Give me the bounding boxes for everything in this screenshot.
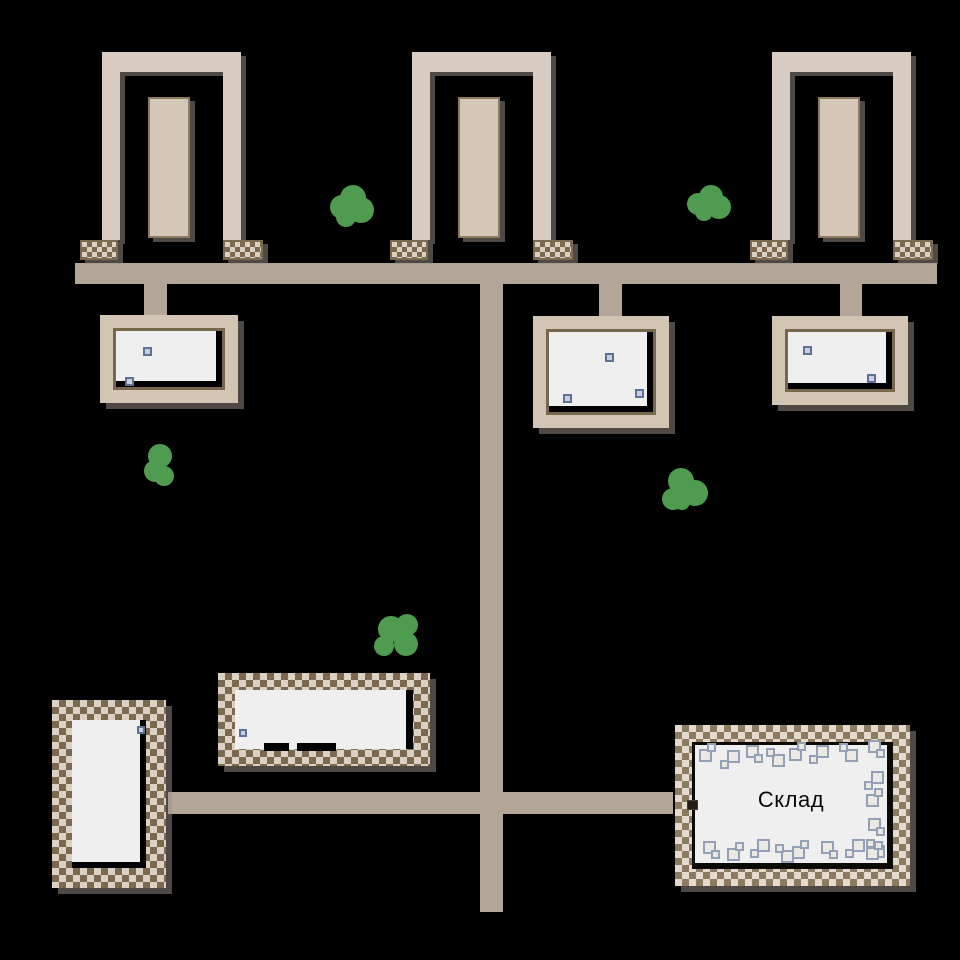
crate-box: [816, 745, 829, 758]
gate-icon: [223, 240, 263, 260]
hall-wall: [772, 52, 790, 240]
crate-icon: [699, 743, 721, 765]
crate-box: [772, 754, 785, 767]
crate-box: [727, 848, 740, 861]
hall-wall: [223, 52, 241, 240]
crate-box: [872, 845, 885, 858]
item-marker-icon: [239, 729, 247, 737]
hall-core: [818, 97, 860, 238]
hall-wall: [102, 52, 241, 72]
crate-box: [864, 781, 873, 790]
house-interior: [785, 329, 895, 392]
bush-lobe: [330, 195, 354, 219]
roads-layer: [0, 0, 960, 960]
crate-box: [829, 850, 838, 859]
house-interior: [546, 329, 656, 415]
crate-icon: [866, 841, 888, 863]
crate-box: [707, 743, 716, 752]
warehouse-door-icon: [687, 800, 698, 810]
hall-core: [148, 97, 190, 238]
hall-wall: [533, 52, 551, 240]
depot-interior: [235, 690, 413, 749]
bush-lobe: [396, 614, 418, 636]
floor-gap: [264, 743, 289, 751]
gate-icon: [750, 240, 788, 260]
item-marker-icon: [803, 346, 812, 355]
crate-box: [868, 740, 881, 753]
hall-wall: [893, 52, 911, 240]
crate-box: [711, 850, 720, 859]
crate-icon: [839, 743, 861, 765]
warehouse-building[interactable]: Склад: [675, 725, 910, 886]
fenced-depot-wide[interactable]: [218, 673, 430, 766]
item-marker-icon: [867, 374, 876, 383]
crate-box: [757, 839, 770, 852]
crate-icon: [809, 745, 831, 767]
bush-lobe: [348, 197, 374, 223]
fenced-depot-tall[interactable]: [52, 700, 166, 888]
bush-lobe: [699, 185, 723, 209]
crate-box: [750, 849, 759, 858]
crate-box: [852, 839, 865, 852]
crate-box: [821, 841, 834, 854]
crate-box: [809, 755, 818, 764]
crate-box: [800, 840, 809, 849]
crate-box: [871, 771, 884, 784]
hall-wall: [772, 52, 911, 72]
driveway-house-a: [144, 284, 167, 315]
crate-box: [775, 844, 784, 853]
crate-icon: [866, 788, 888, 810]
crate-box: [866, 847, 879, 860]
crate-box: [845, 849, 854, 858]
crate-icon: [746, 745, 768, 767]
house-c[interactable]: [772, 316, 908, 405]
crate-box: [720, 760, 729, 769]
driveway-house-b: [599, 284, 622, 316]
gate-icon: [533, 240, 573, 260]
crate-box: [792, 846, 805, 859]
decals-layer: [0, 0, 960, 960]
crate-icon: [766, 748, 788, 770]
crate-icon: [864, 771, 886, 793]
crate-box: [876, 749, 885, 758]
crate-box: [789, 748, 802, 761]
crate-box: [746, 745, 759, 758]
crate-icon: [866, 839, 888, 861]
hall-wall: [102, 52, 120, 240]
crate-box: [839, 743, 848, 752]
warehouse-floor: Склад: [695, 745, 887, 863]
hall-core: [458, 97, 500, 238]
bush-lobe: [148, 444, 172, 468]
bush-lobe: [687, 193, 709, 215]
bush-lobe: [154, 466, 174, 486]
bush-lobe: [378, 616, 404, 642]
house-floor: [549, 332, 647, 406]
house-b[interactable]: [533, 316, 669, 428]
road-bottom: [168, 792, 673, 814]
bush-lobe: [662, 488, 684, 510]
crate-icon: [792, 840, 814, 862]
crate-icon: [775, 844, 797, 866]
crate-box: [781, 850, 794, 863]
crate-icon: [821, 841, 843, 863]
crate-icon: [720, 750, 742, 772]
crate-box: [874, 841, 883, 850]
crate-icon: [789, 742, 811, 764]
house-a[interactable]: [100, 315, 238, 403]
floor-gap: [297, 743, 336, 751]
crate-box: [735, 842, 744, 851]
crate-box: [766, 748, 775, 757]
warehouse-label: Склад: [695, 787, 887, 813]
crate-box: [754, 754, 763, 763]
house-floor: [788, 332, 886, 383]
crate-icon: [845, 839, 867, 861]
bush-lobe: [144, 460, 166, 482]
item-marker-icon: [143, 347, 152, 356]
gate-icon: [80, 240, 118, 260]
crate-box: [845, 749, 858, 762]
gate-icon: [390, 240, 428, 260]
crate-box: [874, 788, 883, 797]
crate-icon: [703, 841, 725, 863]
driveway-house-c: [840, 284, 862, 316]
crate-box: [866, 839, 875, 848]
crate-box: [868, 818, 881, 831]
crate-icon: [727, 842, 749, 864]
bush-lobe: [668, 468, 694, 494]
site-map: Склад: [0, 0, 960, 960]
item-marker-icon: [137, 726, 145, 734]
hall-wall: [412, 52, 430, 240]
crate-box: [703, 841, 716, 854]
house-interior: [113, 328, 225, 390]
gate-icon: [893, 240, 933, 260]
bush-lobe: [340, 185, 366, 211]
item-marker-icon: [125, 377, 134, 386]
hall-building-2[interactable]: [390, 52, 573, 260]
crate-box: [876, 827, 885, 836]
bush-lobe: [394, 632, 418, 656]
hall-building-1[interactable]: [80, 52, 263, 260]
bush-lobe: [674, 494, 690, 510]
road-top: [75, 263, 937, 284]
crate-icon: [868, 740, 890, 762]
warehouse-interior: Склад: [692, 742, 893, 869]
depot-interior: [72, 720, 146, 868]
hall-building-3[interactable]: [750, 52, 933, 260]
house-floor: [116, 331, 216, 381]
item-marker-icon: [635, 389, 644, 398]
bush-lobe: [707, 195, 731, 219]
bush-lobe: [695, 203, 713, 221]
bush-lobe: [374, 636, 394, 656]
crate-box: [699, 749, 712, 762]
buildings-layer: Склад: [0, 0, 960, 960]
depot-floor: [235, 690, 406, 749]
bush-lobe: [336, 207, 356, 227]
bush-lobe: [682, 480, 708, 506]
depot-floor: [72, 720, 140, 862]
hall-wall: [412, 52, 551, 72]
crate-icon: [868, 818, 890, 840]
crate-icon: [750, 839, 772, 861]
crate-box: [727, 750, 740, 763]
road-main-vertical: [480, 284, 503, 912]
item-marker-icon: [605, 353, 614, 362]
crate-box: [866, 794, 879, 807]
item-marker-icon: [563, 394, 572, 403]
crate-box: [797, 742, 806, 751]
